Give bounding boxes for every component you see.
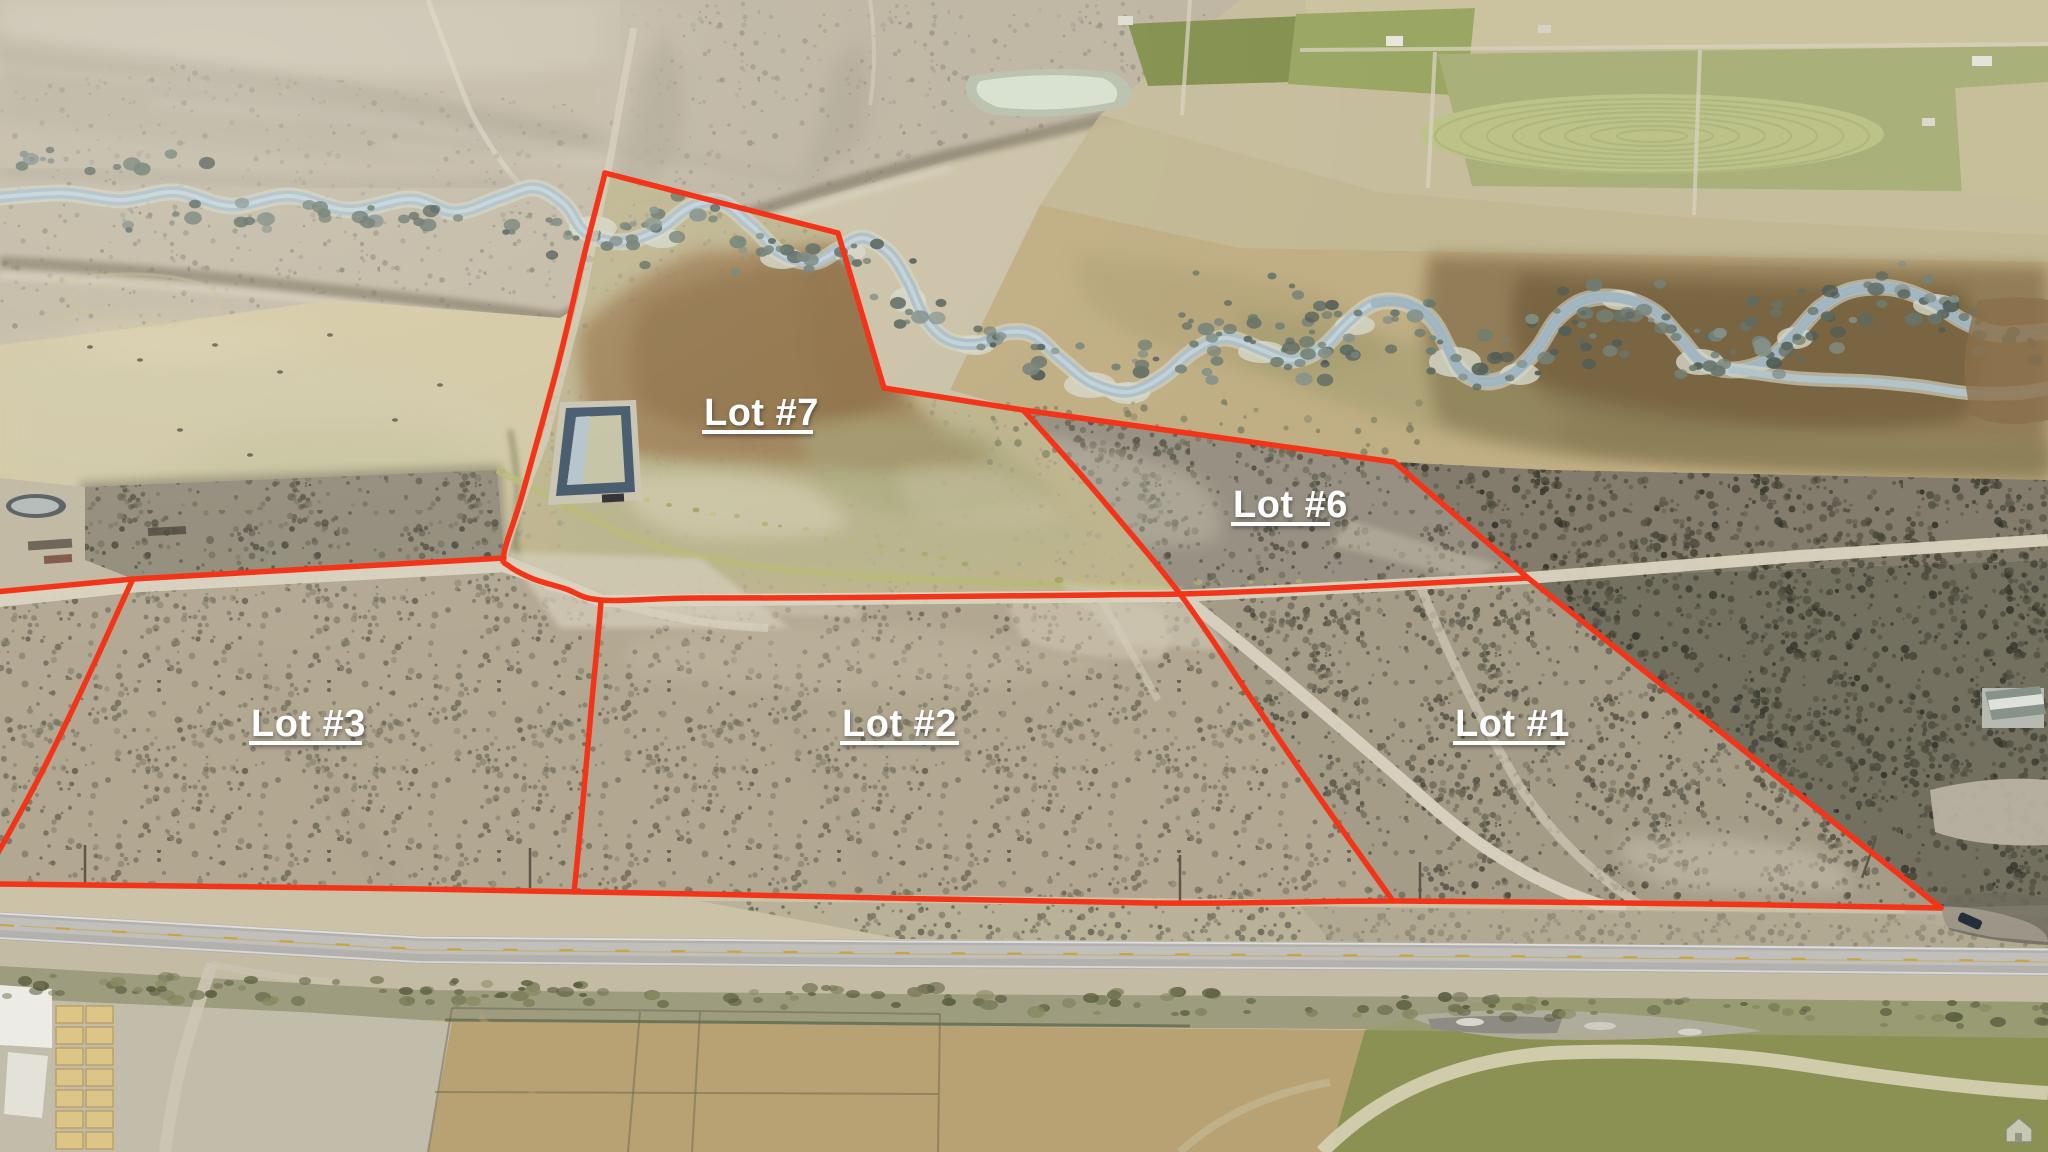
svg-text:Lot #7: Lot #7 [704,392,819,434]
svg-text:Lot #3: Lot #3 [251,703,366,745]
svg-text:Lot #1: Lot #1 [1455,703,1570,745]
svg-text:Lot #6: Lot #6 [1233,484,1348,526]
svg-text:Lot #2: Lot #2 [842,703,957,745]
